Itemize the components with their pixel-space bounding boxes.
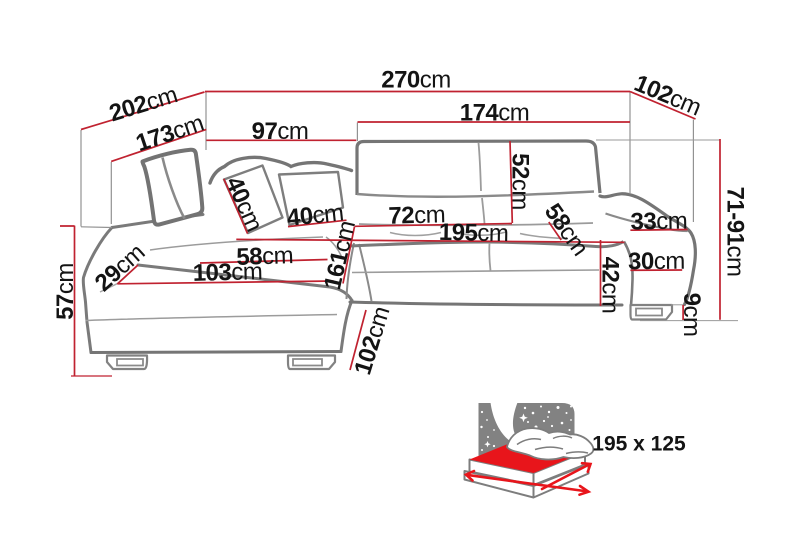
- svg-text:270cm: 270cm: [381, 67, 451, 94]
- svg-text:97cm: 97cm: [252, 118, 309, 145]
- svg-text:71-91cm: 71-91cm: [722, 187, 749, 277]
- svg-text:33cm: 33cm: [630, 208, 687, 236]
- svg-text:30cm: 30cm: [628, 248, 685, 275]
- svg-text:52cm: 52cm: [507, 153, 534, 210]
- svg-text:42cm: 42cm: [597, 257, 624, 314]
- svg-text:195 x 125: 195 x 125: [592, 433, 686, 456]
- svg-text:103cm: 103cm: [192, 258, 262, 287]
- svg-text:174cm: 174cm: [460, 100, 530, 127]
- svg-text:9cm: 9cm: [678, 293, 705, 337]
- svg-text:57cm: 57cm: [52, 263, 79, 320]
- svg-text:195cm: 195cm: [439, 219, 509, 247]
- svg-text:72cm: 72cm: [388, 201, 445, 229]
